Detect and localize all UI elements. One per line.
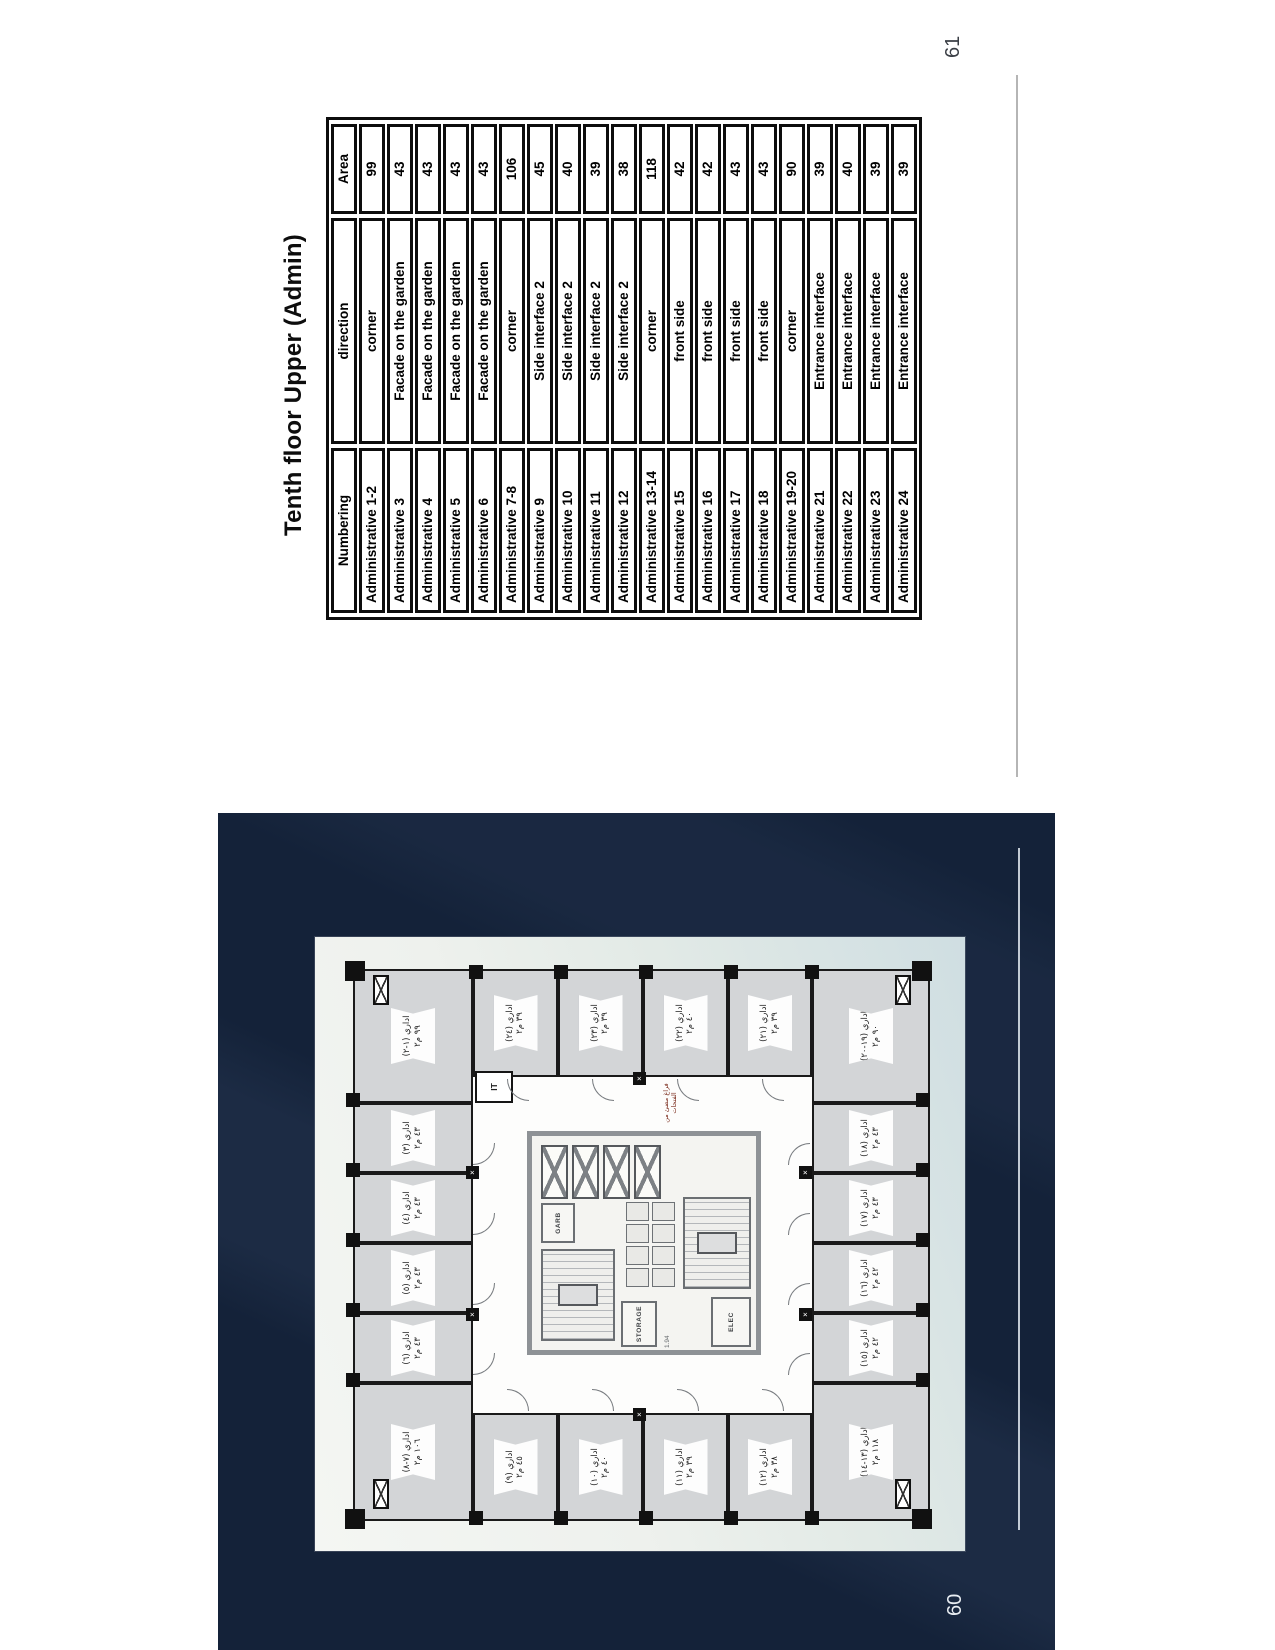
corner-column-block — [912, 1509, 932, 1529]
room-label-tag-15: اداري (١٥)٤٢ م٢ — [849, 1320, 893, 1376]
cell-area: 40 — [555, 124, 581, 214]
room-area-label: ٩٠ م٢ — [872, 1025, 881, 1047]
cell-direction: front side — [695, 218, 721, 444]
floor-table: Numbering direction Area Administrative … — [326, 117, 922, 620]
cell-direction: corner — [359, 218, 385, 444]
room-area-label: ٤٣ م٢ — [414, 1197, 423, 1219]
cell-area: 39 — [863, 124, 889, 214]
room-area-label: ٤٣ م٢ — [872, 1127, 881, 1149]
column-block — [469, 965, 483, 979]
rotated-spread: GARB STORAGE ELEC 1.94 IT فراغ مضئ من ال… — [0, 0, 1275, 1650]
table-row: Administrative 1-2corner99 — [359, 124, 385, 613]
column-block — [346, 1233, 360, 1247]
column-block — [554, 1511, 568, 1525]
cell-numbering: Administrative 10 — [555, 448, 581, 613]
column-block — [724, 965, 738, 979]
cell-numbering: Administrative 24 — [891, 448, 917, 613]
cell-direction: Side interface 2 — [583, 218, 609, 444]
room-label: اداري (٥) — [403, 1261, 412, 1294]
stair-landing — [558, 1284, 598, 1306]
room-label-tag-6: اداري (٦)٤٣ م٢ — [391, 1320, 435, 1376]
corner-column-block — [912, 961, 932, 981]
elevator-shaft-icon — [634, 1145, 661, 1199]
cell-direction: front side — [723, 218, 749, 444]
cell-direction: Entrance interface — [891, 218, 917, 444]
table-row: Administrative 24Entrance interface39 — [891, 124, 917, 613]
table-row: Administrative 9Side interface 245 — [527, 124, 553, 613]
floor-table-body: Administrative 1-2corner99Administrative… — [359, 124, 917, 613]
room-area-label: ٣٨ م٢ — [771, 1456, 780, 1478]
room-label: اداري (٧-٨) — [403, 1432, 412, 1473]
table-row: Administrative 4Facade on the garden43 — [415, 124, 441, 613]
room-label: اداري (١٣-١٤) — [861, 1427, 870, 1477]
room-area-label: ٤٣ م٢ — [414, 1337, 423, 1359]
room-label-tag-21: اداري (٢١)٣٩ م٢ — [748, 995, 792, 1051]
cell-area: 43 — [723, 124, 749, 214]
room-area-label: ١٠٦ م٢ — [414, 1439, 423, 1465]
door-x-icon: × — [633, 1072, 646, 1085]
shaft-x-icon — [373, 1479, 389, 1509]
cell-numbering: Administrative 12 — [611, 448, 637, 613]
table-row: Administrative 5Facade on the garden43 — [443, 124, 469, 613]
room-label: اداري (٩) — [506, 1450, 515, 1483]
cell-area: 43 — [415, 124, 441, 214]
cell-numbering: Administrative 6 — [471, 448, 497, 613]
column-block — [916, 1093, 930, 1107]
cell-direction: corner — [779, 218, 805, 444]
room-area-label: ٣٩ م٢ — [601, 1012, 610, 1034]
room-area-label: ٣٩ م٢ — [771, 1012, 780, 1034]
cell-area: 43 — [443, 124, 469, 214]
cell-numbering: Administrative 15 — [667, 448, 693, 613]
room-label: اداري (٢٤) — [506, 1004, 515, 1042]
table-row: Administrative 15front side42 — [667, 124, 693, 613]
left-footer-rule — [1018, 848, 1020, 1530]
room-area-label: ٤٣ م٢ — [414, 1267, 423, 1289]
table-row: Administrative 3Facade on the garden43 — [387, 124, 413, 613]
table-row: Administrative 6Facade on the garden43 — [471, 124, 497, 613]
electrical-room: ELEC — [711, 1297, 751, 1347]
table-row: Administrative 12Side interface 238 — [611, 124, 637, 613]
room-label: اداري (٤) — [403, 1191, 412, 1224]
room-label: اداري (١٨) — [861, 1119, 870, 1157]
storage-room: STORAGE — [621, 1301, 657, 1347]
cell-numbering: Administrative 21 — [807, 448, 833, 613]
column-block — [916, 1163, 930, 1177]
room-label: اداري (١٦) — [861, 1259, 870, 1297]
room-area-label: ٩٩ م٢ — [414, 1025, 423, 1047]
wc-block — [623, 1195, 677, 1295]
column-block — [805, 1511, 819, 1525]
column-block — [346, 1303, 360, 1317]
wc-stall — [652, 1247, 675, 1266]
column-block — [916, 1373, 930, 1387]
door-x-icon: × — [466, 1166, 479, 1179]
room-area-label: ٤٢ م٢ — [872, 1267, 881, 1289]
room-label: اداري (٢٢) — [676, 1004, 685, 1042]
table-row: Administrative 10Side interface 240 — [555, 124, 581, 613]
cell-area: 42 — [667, 124, 693, 214]
room-label-tag-23: اداري (٢٣)٣٩ م٢ — [579, 995, 623, 1051]
cell-direction: Entrance interface — [835, 218, 861, 444]
cell-area: 39 — [807, 124, 833, 214]
floor-plan-panel: GARB STORAGE ELEC 1.94 IT فراغ مضئ من ال… — [315, 937, 965, 1551]
table-row: Administrative 11Side interface 239 — [583, 124, 609, 613]
room-label-tag-1-2: اداري (١-٢)٩٩ م٢ — [391, 1008, 435, 1064]
cell-area: 39 — [583, 124, 609, 214]
elevator-shaft-icon — [603, 1145, 630, 1199]
door-x-icon: × — [799, 1308, 812, 1321]
cell-numbering: Administrative 18 — [751, 448, 777, 613]
cell-area: 38 — [611, 124, 637, 214]
wc-stall — [652, 1269, 675, 1288]
room-label-tag-19-20: اداري (١٩-٢٠)٩٠ م٢ — [849, 1008, 893, 1064]
room-label-tag-10: اداري (١٠)٤٠ م٢ — [579, 1439, 623, 1495]
cell-numbering: Administrative 16 — [695, 448, 721, 613]
garbage-room: GARB — [541, 1203, 575, 1243]
room-label-tag-17: اداري (١٧)٤٣ م٢ — [849, 1180, 893, 1236]
room-area-label: ٤٢ م٢ — [872, 1337, 881, 1359]
cell-numbering: Administrative 13-14 — [639, 448, 665, 613]
table-row: Administrative 16front side42 — [695, 124, 721, 613]
column-block — [639, 1511, 653, 1525]
right-footer-rule — [1016, 75, 1018, 777]
cell-direction: Facade on the garden — [471, 218, 497, 444]
room-label-tag-12: اداري (١٢)٣٨ م٢ — [748, 1439, 792, 1495]
room-label: اداري (١٥) — [861, 1329, 870, 1367]
room-area-label: ٤٣ م٢ — [872, 1197, 881, 1219]
cell-direction: Facade on the garden — [387, 218, 413, 444]
cell-area: 42 — [695, 124, 721, 214]
table-row: Administrative 21Entrance interface39 — [807, 124, 833, 613]
table-row: Administrative 13-14corner118 — [639, 124, 665, 613]
header-direction: direction — [331, 218, 357, 444]
room-label-tag-13-14: اداري (١٣-١٤)١١٨ م٢ — [849, 1424, 893, 1480]
table-row: Administrative 17front side43 — [723, 124, 749, 613]
cell-direction: corner — [499, 218, 525, 444]
door-x-icon: × — [466, 1308, 479, 1321]
cell-area: 90 — [779, 124, 805, 214]
cell-area: 40 — [835, 124, 861, 214]
room-label-tag-9: اداري (٩)٤٥ م٢ — [494, 1439, 538, 1495]
column-block — [916, 1233, 930, 1247]
cell-direction: Side interface 2 — [555, 218, 581, 444]
cell-area: 45 — [527, 124, 553, 214]
room-label-tag-24: اداري (٢٤)٣٩ م٢ — [494, 995, 538, 1051]
table-header-row: Numbering direction Area — [331, 124, 357, 613]
wc-stall — [626, 1247, 649, 1266]
cell-direction: Entrance interface — [807, 218, 833, 444]
cell-direction: Facade on the garden — [415, 218, 441, 444]
stair-landing — [697, 1232, 737, 1254]
room-label-tag-4: اداري (٤)٤٣ م٢ — [391, 1180, 435, 1236]
cell-numbering: Administrative 3 — [387, 448, 413, 613]
column-block — [805, 965, 819, 979]
room-area-label: ١١٨ م٢ — [872, 1439, 881, 1465]
room-label: اداري (١٠) — [591, 1448, 600, 1486]
corner-column-block — [345, 961, 365, 981]
cell-direction: Entrance interface — [863, 218, 889, 444]
storage-room-label: STORAGE — [636, 1306, 643, 1342]
room-label: اداري (٢١) — [760, 1004, 769, 1042]
room-label-tag-16: اداري (١٦)٤٢ م٢ — [849, 1250, 893, 1306]
column-block — [916, 1303, 930, 1317]
elevator-shaft-icon — [572, 1145, 599, 1199]
room-label-tag-5: اداري (٥)٤٣ م٢ — [391, 1250, 435, 1306]
room-label: اداري (٢٣) — [591, 1004, 600, 1042]
cell-area: 99 — [359, 124, 385, 214]
header-numbering: Numbering — [331, 448, 357, 613]
page-title: Tenth floor Upper (Admin) — [280, 150, 308, 620]
room-label-tag-22: اداري (٢٢)٤٠ م٢ — [664, 995, 708, 1051]
shaft-x-icon — [373, 975, 389, 1005]
header-area: Area — [331, 124, 357, 214]
cell-area: 43 — [751, 124, 777, 214]
cell-numbering: Administrative 7-8 — [499, 448, 525, 613]
room-label-tag-3: اداري (٣)٤٣ م٢ — [391, 1110, 435, 1166]
cell-numbering: Administrative 19-20 — [779, 448, 805, 613]
garbage-room-label: GARB — [555, 1212, 562, 1234]
room-area-label: ٣٩ م٢ — [516, 1012, 525, 1034]
elevator-shaft-icon — [541, 1145, 568, 1199]
room-label: اداري (١-٢) — [403, 1016, 412, 1057]
room-label-tag-18: اداري (١٨)٤٣ م٢ — [849, 1110, 893, 1166]
wc-stall — [652, 1225, 675, 1244]
corner-column-block — [345, 1509, 365, 1529]
column-block — [639, 965, 653, 979]
column-block — [346, 1093, 360, 1107]
table-row: Administrative 7-8corner106 — [499, 124, 525, 613]
room-area-label: ٤٠ م٢ — [686, 1012, 695, 1034]
it-room-label: IT — [489, 1083, 499, 1091]
it-room: IT — [475, 1071, 513, 1103]
left-page-number: 60 — [944, 1594, 967, 1616]
cell-numbering: Administrative 23 — [863, 448, 889, 613]
room-label: اداري (٣) — [403, 1121, 412, 1154]
room-label: اداري (١٩-٢٠) — [861, 1011, 870, 1061]
electrical-room-label: ELEC — [728, 1312, 735, 1332]
shaft-x-icon — [895, 1479, 911, 1509]
room-label: اداري (٦) — [403, 1331, 412, 1364]
room-label: اداري (١٢) — [760, 1448, 769, 1486]
dimension-label: 1.94 — [664, 1335, 671, 1348]
cell-area: 43 — [387, 124, 413, 214]
staircase-1 — [541, 1249, 615, 1341]
document-sheet: GARB STORAGE ELEC 1.94 IT فراغ مضئ من ال… — [0, 0, 1275, 1650]
cell-direction: Facade on the garden — [443, 218, 469, 444]
room-area-label: ٤٥ م٢ — [516, 1456, 525, 1478]
wc-stall — [626, 1269, 649, 1288]
column-block — [346, 1373, 360, 1387]
cell-numbering: Administrative 17 — [723, 448, 749, 613]
wc-stall — [626, 1203, 649, 1222]
room-label: اداري (١١) — [676, 1448, 685, 1486]
cell-numbering: Administrative 1-2 — [359, 448, 385, 613]
door-x-icon: × — [799, 1166, 812, 1179]
cell-numbering: Administrative 5 — [443, 448, 469, 613]
door-x-icon: × — [633, 1408, 646, 1421]
room-label-tag-7-8: اداري (٧-٨)١٠٦ م٢ — [391, 1424, 435, 1480]
cell-direction: Side interface 2 — [611, 218, 637, 444]
table-row: Administrative 19-20corner90 — [779, 124, 805, 613]
column-block — [724, 1511, 738, 1525]
cell-area: 43 — [471, 124, 497, 214]
cell-direction: front side — [751, 218, 777, 444]
right-page-number: 61 — [942, 36, 965, 58]
cell-numbering: Administrative 22 — [835, 448, 861, 613]
wc-stall — [652, 1203, 675, 1222]
column-block — [469, 1511, 483, 1525]
room-area-label: ٤٠ م٢ — [601, 1456, 610, 1478]
wc-stall — [626, 1225, 649, 1244]
cell-direction: corner — [639, 218, 665, 444]
room-area-label: ٣٩ م٢ — [686, 1456, 695, 1478]
cell-area: 106 — [499, 124, 525, 214]
column-block — [554, 965, 568, 979]
cell-numbering: Administrative 4 — [415, 448, 441, 613]
cell-numbering: Administrative 9 — [527, 448, 553, 613]
cell-area: 39 — [891, 124, 917, 214]
shaft-x-icon — [895, 975, 911, 1005]
room-area-label: ٤٣ م٢ — [414, 1127, 423, 1149]
cell-direction: Side interface 2 — [527, 218, 553, 444]
column-block — [346, 1163, 360, 1177]
cell-numbering: Administrative 11 — [583, 448, 609, 613]
cell-area: 118 — [639, 124, 665, 214]
floor-plan-page: GARB STORAGE ELEC 1.94 IT فراغ مضئ من ال… — [218, 813, 1055, 1650]
room-label: اداري (١٧) — [861, 1189, 870, 1227]
lightwell-annotation: فراغ مضئ من الفتحات — [663, 1079, 679, 1127]
table-row: Administrative 23Entrance interface39 — [863, 124, 889, 613]
table-row: Administrative 22Entrance interface40 — [835, 124, 861, 613]
cell-direction: front side — [667, 218, 693, 444]
room-label-tag-11: اداري (١١)٣٩ م٢ — [664, 1439, 708, 1495]
table-row: Administrative 18front side43 — [751, 124, 777, 613]
staircase-2 — [683, 1197, 751, 1289]
